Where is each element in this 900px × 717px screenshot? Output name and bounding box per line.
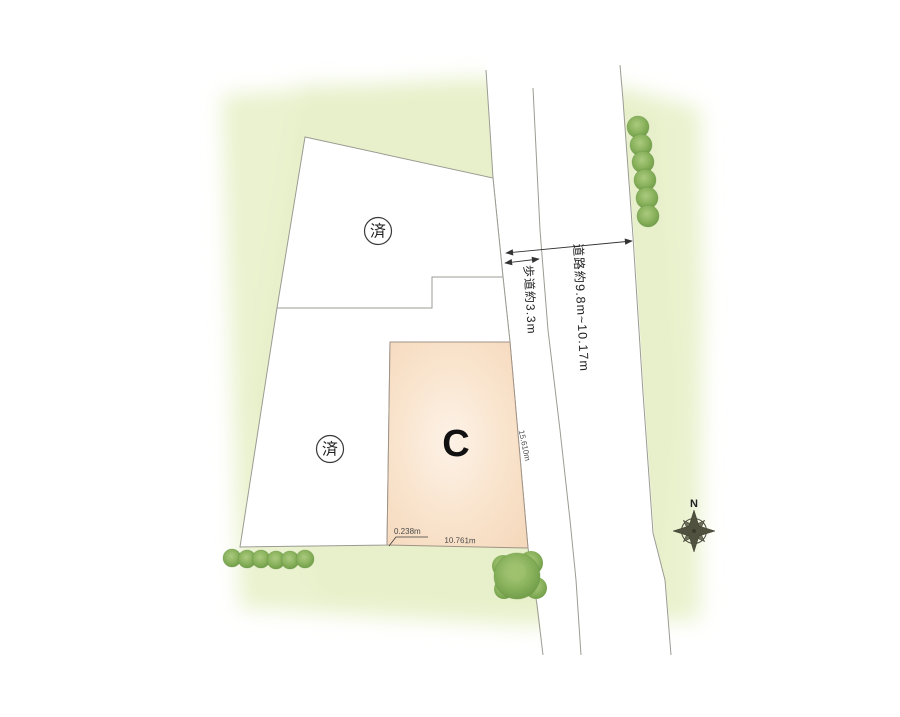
- compass-north-label: N: [690, 498, 698, 510]
- lot-b-status-label: 済: [322, 441, 338, 459]
- site-plan-image: 済 済 C 歩道約3.3m 道路約9.8m~10.17m 15.610m 10.…: [0, 0, 900, 717]
- large-tree: [492, 551, 547, 599]
- lot-a-status-label: 済: [370, 223, 386, 241]
- lot-c-offset-label: 0.238m: [394, 527, 421, 536]
- lot-c-label: C: [442, 423, 469, 465]
- lot-c-bottom-edge-label: 10.761m: [444, 536, 476, 546]
- site-plan-svg: 済 済 C 歩道約3.3m 道路約9.8m~10.17m 15.610m 10.…: [0, 0, 900, 717]
